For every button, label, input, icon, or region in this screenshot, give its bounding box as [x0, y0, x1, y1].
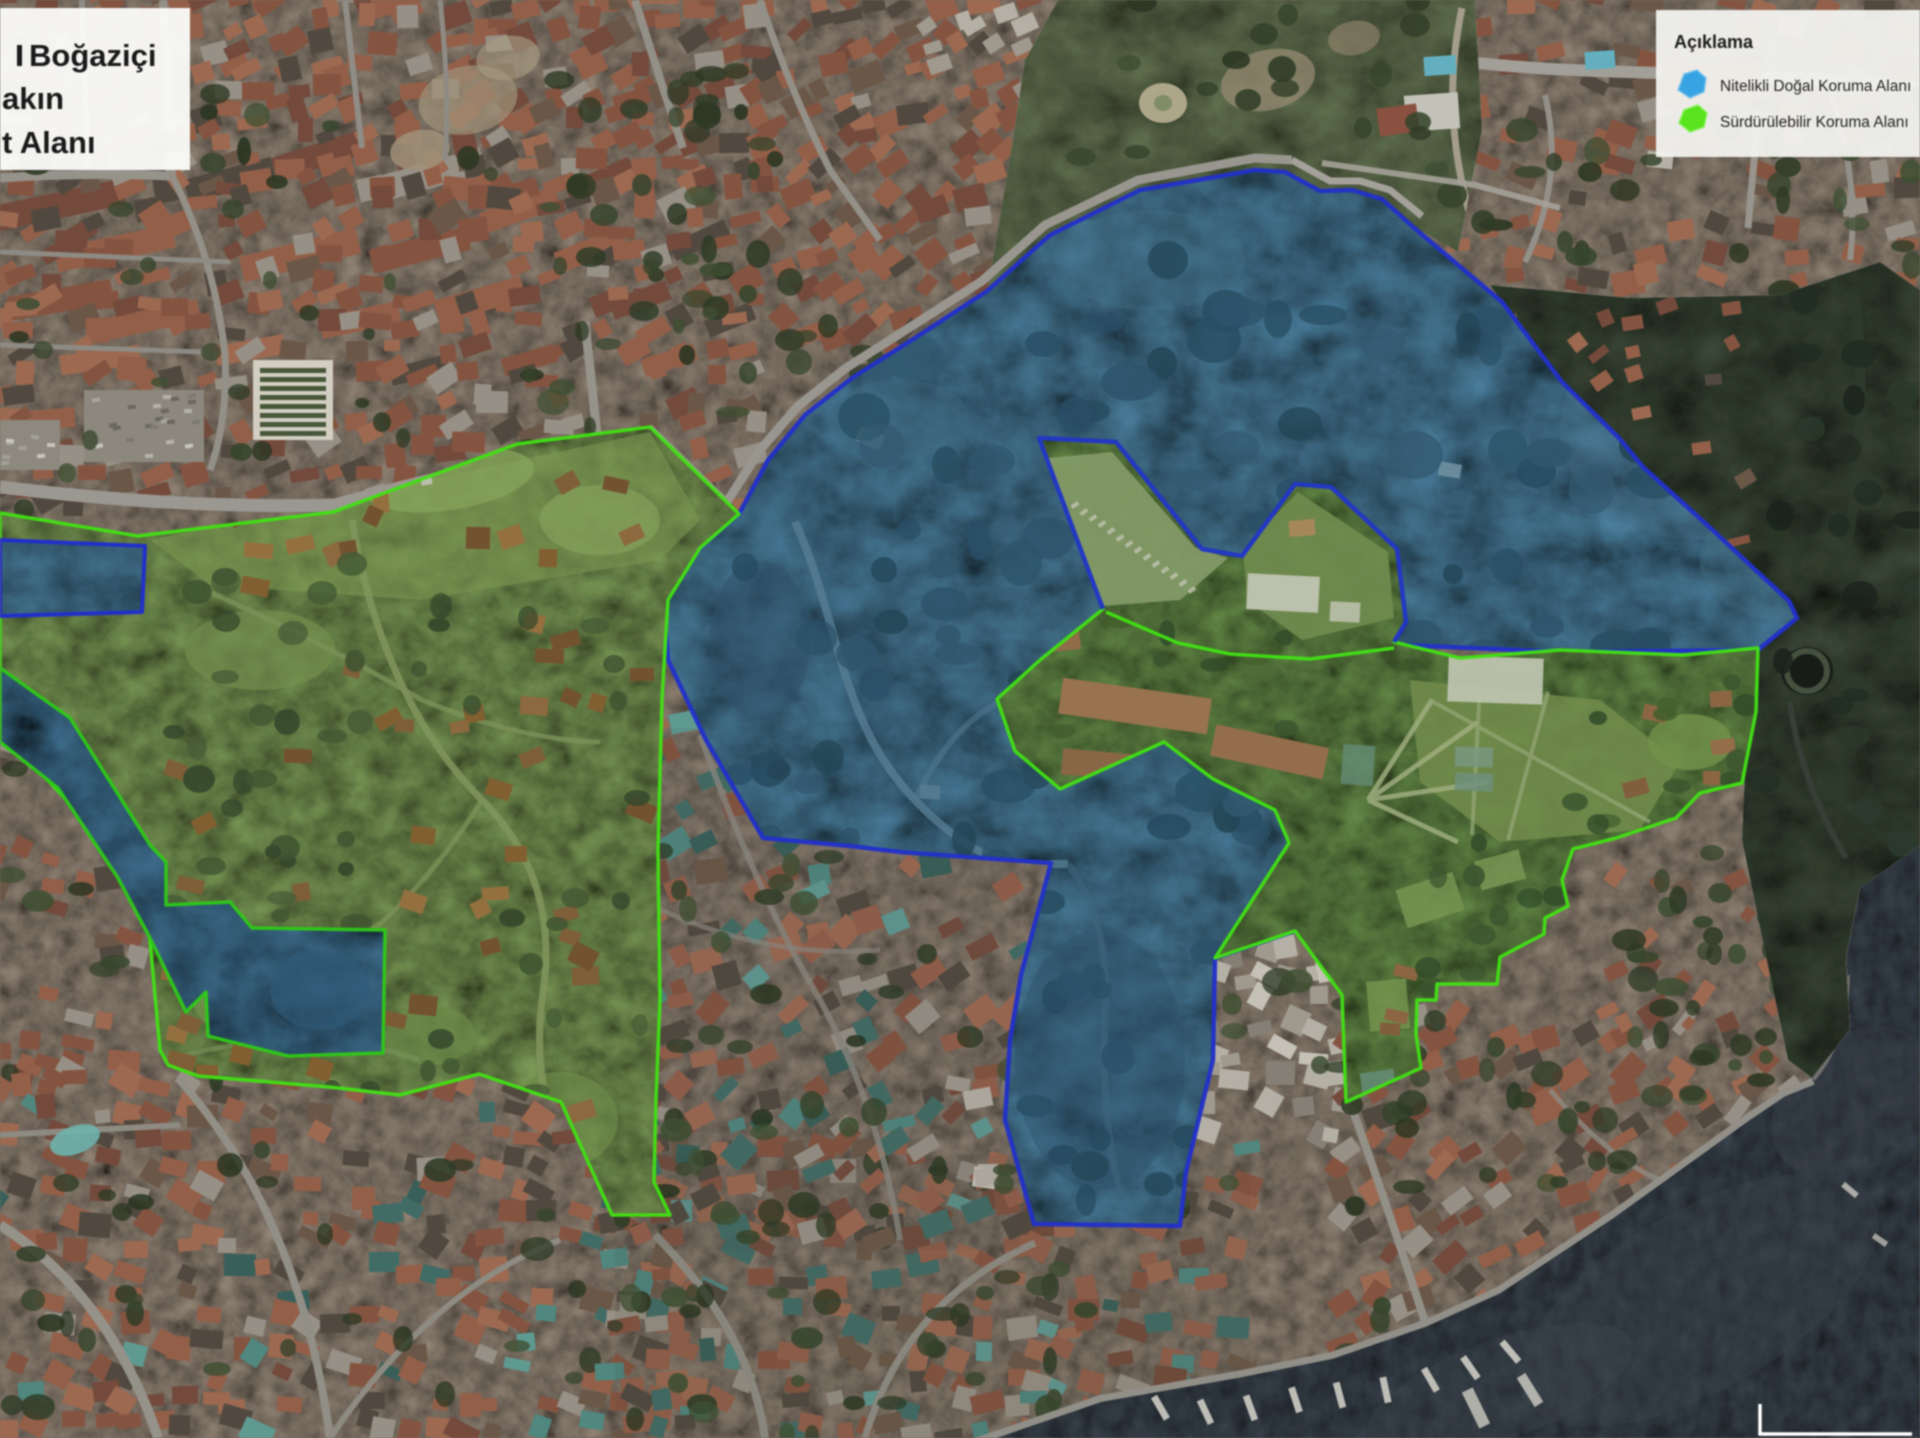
svg-text:Nitelikli Doğal Koruma Alanı: Nitelikli Doğal Koruma Alanı — [1720, 78, 1911, 95]
svg-text:t Alanı: t Alanı — [2, 125, 96, 160]
svg-text:Sürdürülebilir Koruma Alanı: Sürdürülebilir Koruma Alanı — [1720, 114, 1909, 131]
svg-text:akın: akın — [2, 81, 64, 116]
svg-text:Boğaziçi: Boğaziçi — [29, 38, 156, 73]
svg-text:Açıklama: Açıklama — [1674, 32, 1754, 52]
